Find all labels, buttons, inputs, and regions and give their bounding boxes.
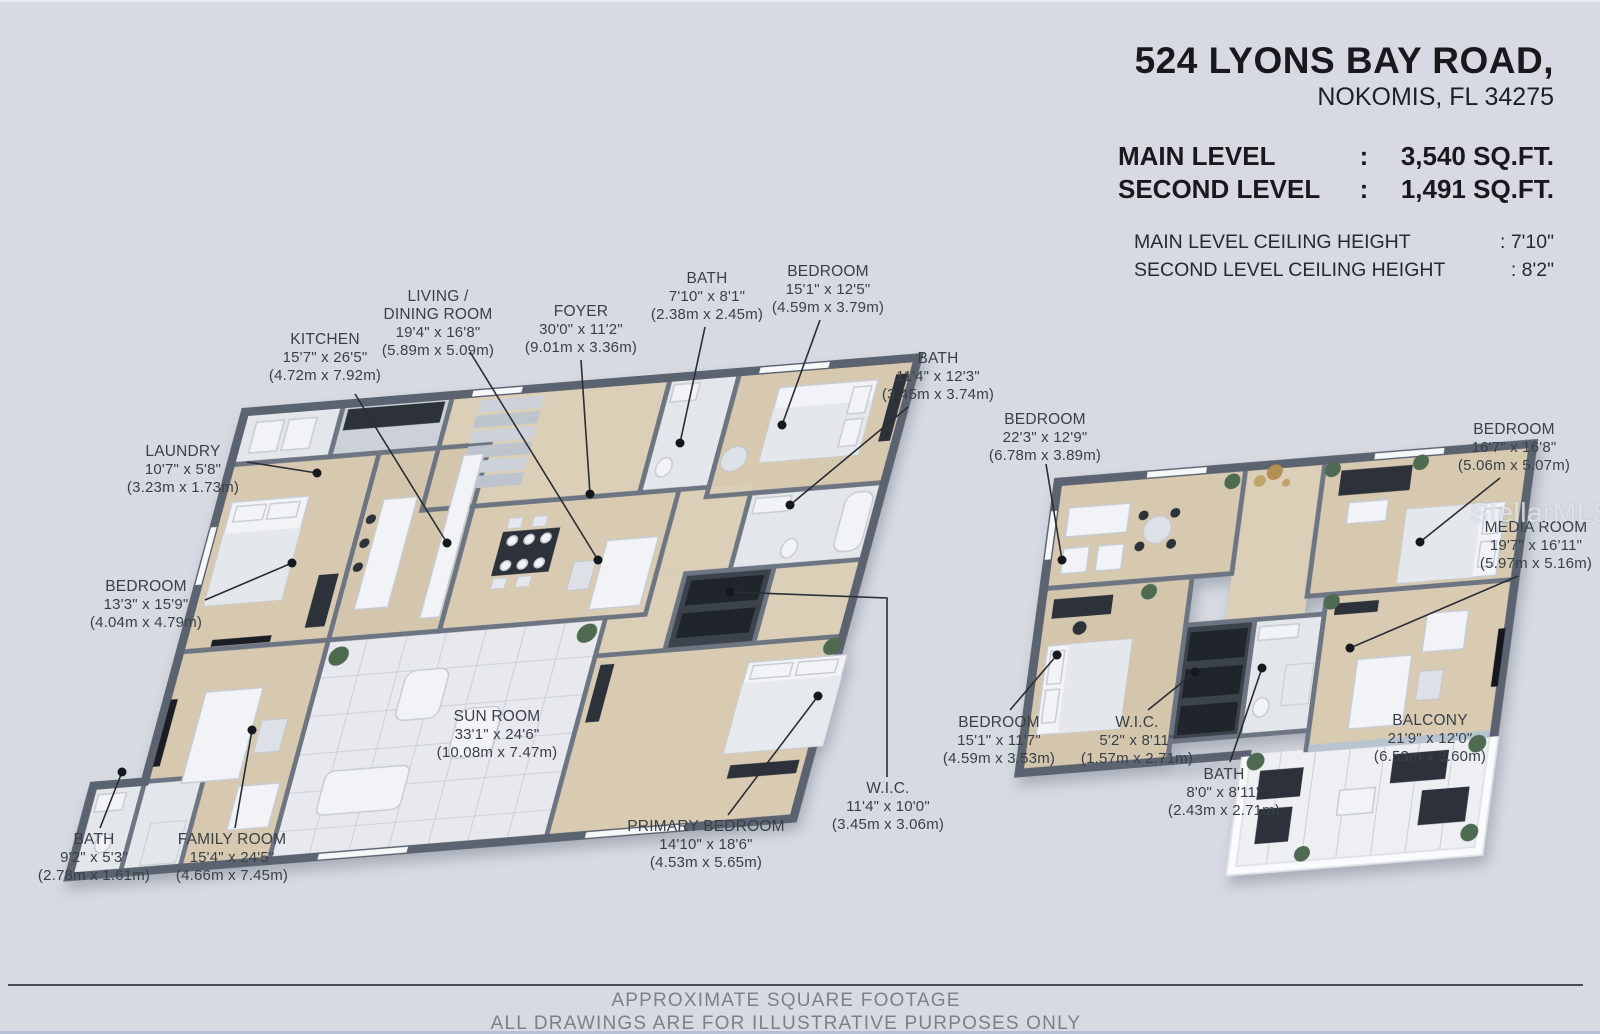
- room-dims-imperial: 10'7" x 5'8": [127, 461, 239, 479]
- main-ceiling-row: MAIN LEVEL CEILING HEIGHT : 7'10": [1134, 228, 1554, 256]
- room-dims-imperial: 19'4" x 16'8": [382, 324, 494, 342]
- room-label-living-dining: LIVING / DINING ROOM 19'4" x 16'8" (5.89…: [382, 288, 494, 360]
- room-dims-metric: (10.08m x 7.47m): [437, 744, 558, 762]
- room-dims-metric: (3.45m x 3.06m): [832, 816, 944, 834]
- room-dims-imperial: 19'7" x 16'11": [1480, 537, 1592, 555]
- room-label-bedroom-top: BEDROOM 15'1" x 12'5" (4.59m x 3.79m): [772, 263, 884, 317]
- room-dims-metric: (2.38m x 2.45m): [651, 306, 763, 324]
- room-label-bedroom-left: BEDROOM 13'3" x 15'9" (4.04m x 4.79m): [90, 578, 202, 632]
- room-label-bath-top: BATH 7'10" x 8'1" (2.38m x 2.45m): [651, 270, 763, 324]
- main-level-sqft-row: MAIN LEVEL : 3,540 SQ.FT.: [1118, 140, 1554, 173]
- room-name: FAMILY ROOM: [176, 831, 288, 849]
- room-label-bath-bottom-left: BATH 9'2" x 5'3" (2.78m x 1.61m): [38, 831, 150, 885]
- room-name: W.I.C.: [832, 780, 944, 798]
- room-label-bedroom-2a: BEDROOM 22'3" x 12'9" (6.78m x 3.89m): [989, 411, 1101, 465]
- room-label-bath-second: BATH 8'0" x 8'11" (2.43m x 2.71m): [1168, 766, 1280, 820]
- room-dims-metric: (3.45m x 3.74m): [882, 386, 994, 404]
- room-name: BEDROOM: [772, 263, 884, 281]
- room-name: BEDROOM: [90, 578, 202, 596]
- footer-disclaimer: APPROXIMATE SQUARE FOOTAGE ALL DRAWINGS …: [0, 989, 1572, 1034]
- room-label-bedroom-2b: BEDROOM 16'7" x 16'8" (5.06m x 5.07m): [1458, 421, 1570, 475]
- second-level-sqft-row: SECOND LEVEL : 1,491 SQ.FT.: [1118, 173, 1554, 206]
- colon-separator: :: [1354, 173, 1374, 206]
- room-name: PRIMARY BEDROOM: [627, 818, 784, 836]
- room-dims-metric: (4.66m x 7.45m): [176, 867, 288, 885]
- footer-divider: [8, 984, 1583, 986]
- room-dims-metric: (2.43m x 2.71m): [1168, 802, 1280, 820]
- room-name: BEDROOM: [1458, 421, 1570, 439]
- room-name: BEDROOM: [989, 411, 1101, 429]
- room-label-family-room: FAMILY ROOM 15'4" x 24'5" (4.66m x 7.45m…: [176, 831, 288, 885]
- room-name: SUN ROOM: [437, 708, 558, 726]
- room-dims-imperial: 7'10" x 8'1": [651, 288, 763, 306]
- room-name: BATH: [38, 831, 150, 849]
- room-dims-imperial: 22'3" x 12'9": [989, 429, 1101, 447]
- room-dims-metric: (5.89m x 5.09m): [382, 342, 494, 360]
- room-name: BATH: [1168, 766, 1280, 784]
- second-level-floorplan: [1000, 441, 1533, 890]
- room-name: BATH: [651, 270, 763, 288]
- room-label-sun-room: SUN ROOM 33'1" x 24'6" (10.08m x 7.47m): [437, 708, 558, 762]
- room-dims-metric: (6.78m x 3.89m): [989, 447, 1101, 465]
- room-label-bedroom-2c: BEDROOM 15'1" x 11'7" (4.59m x 3.53m): [943, 714, 1055, 768]
- room-name: FOYER: [525, 303, 637, 321]
- room-dims-imperial: 33'1" x 24'6": [437, 726, 558, 744]
- room-name: KITCHEN: [269, 331, 381, 349]
- second-ceiling-row: SECOND LEVEL CEILING HEIGHT : 8'2": [1134, 256, 1554, 284]
- room-dims-metric: (4.59m x 3.79m): [772, 299, 884, 317]
- room-dims-imperial: 14'10" x 18'6": [627, 836, 784, 854]
- room-name: BALCONY: [1374, 712, 1486, 730]
- room-name: LIVING / DINING ROOM: [382, 288, 494, 324]
- room-name: BATH: [882, 350, 994, 368]
- room-dims-imperial: 15'1" x 12'5": [772, 281, 884, 299]
- second-ceiling-label: SECOND LEVEL CEILING HEIGHT: [1134, 256, 1445, 284]
- room-dims-imperial: 8'0" x 8'11": [1168, 784, 1280, 802]
- room-dims-metric: (4.72m x 7.92m): [269, 367, 381, 385]
- room-label-bath-right: BATH 11'4" x 12'3" (3.45m x 3.74m): [882, 350, 994, 404]
- main-ceiling-value: : 7'10": [1500, 228, 1554, 256]
- second-ceiling-value: : 8'2": [1511, 256, 1554, 284]
- room-dims-metric: (3.23m x 1.73m): [127, 479, 239, 497]
- header-block: 524 LYONS BAY ROAD, NOKOMIS, FL 34275 MA…: [1118, 40, 1554, 284]
- main-ceiling-label: MAIN LEVEL CEILING HEIGHT: [1134, 228, 1411, 256]
- room-dims-metric: (6.53m x 3.60m): [1374, 748, 1486, 766]
- stellar-mls-watermark: StellarMLS: [1470, 497, 1600, 529]
- room-dims-metric: (2.78m x 1.61m): [38, 867, 150, 885]
- room-label-primary-bedroom: PRIMARY BEDROOM 14'10" x 18'6" (4.53m x …: [627, 818, 784, 872]
- room-dims-imperial: 15'7" x 26'5": [269, 349, 381, 367]
- second-level-sqft: 1,491 SQ.FT.: [1374, 173, 1554, 206]
- room-name: LAUNDRY: [127, 443, 239, 461]
- room-dims-metric: (9.01m x 3.36m): [525, 339, 637, 357]
- main-level-sqft: 3,540 SQ.FT.: [1374, 140, 1554, 173]
- room-dims-imperial: 13'3" x 15'9": [90, 596, 202, 614]
- footer-line1: APPROXIMATE SQUARE FOOTAGE: [0, 989, 1572, 1012]
- room-name: BEDROOM: [943, 714, 1055, 732]
- room-dims-metric: (5.97m x 5.16m): [1480, 555, 1592, 573]
- colon-separator: :: [1354, 140, 1374, 173]
- room-dims-metric: (4.04m x 4.79m): [90, 614, 202, 632]
- room-dims-imperial: 21'9" x 12'0": [1374, 730, 1486, 748]
- floorplan-sheet: 524 LYONS BAY ROAD, NOKOMIS, FL 34275 MA…: [0, 0, 1600, 1034]
- room-dims-metric: (5.06m x 5.07m): [1458, 457, 1570, 475]
- room-dims-imperial: 15'1" x 11'7": [943, 732, 1055, 750]
- room-label-wic-second: W.I.C. 5'2" x 8'11" (1.57m x 2.71m): [1081, 714, 1193, 768]
- room-label-laundry: LAUNDRY 10'7" x 5'8" (3.23m x 1.73m): [127, 443, 239, 497]
- room-name: W.I.C.: [1081, 714, 1193, 732]
- room-dims-imperial: 5'2" x 8'11": [1081, 732, 1193, 750]
- address-line1: 524 LYONS BAY ROAD,: [1135, 40, 1554, 82]
- room-dims-metric: (4.53m x 5.65m): [627, 854, 784, 872]
- room-dims-imperial: 15'4" x 24'5": [176, 849, 288, 867]
- room-dims-metric: (4.59m x 3.53m): [943, 750, 1055, 768]
- ceiling-height-table: MAIN LEVEL CEILING HEIGHT : 7'10" SECOND…: [1134, 228, 1554, 284]
- room-label-foyer: FOYER 30'0" x 11'2" (9.01m x 3.36m): [525, 303, 637, 357]
- address-line2: NOKOMIS, FL 34275: [1317, 82, 1554, 112]
- square-footage-table: MAIN LEVEL : 3,540 SQ.FT. SECOND LEVEL :…: [1118, 140, 1554, 206]
- main-level-label: MAIN LEVEL: [1118, 140, 1354, 173]
- room-dims-imperial: 16'7" x 16'8": [1458, 439, 1570, 457]
- room-dims-imperial: 9'2" x 5'3": [38, 849, 150, 867]
- room-dims-imperial: 11'4" x 10'0": [832, 798, 944, 816]
- room-dims-imperial: 11'4" x 12'3": [882, 368, 994, 386]
- room-label-balcony: BALCONY 21'9" x 12'0" (6.53m x 3.60m): [1374, 712, 1486, 766]
- room-dims-imperial: 30'0" x 11'2": [525, 321, 637, 339]
- room-label-kitchen: KITCHEN 15'7" x 26'5" (4.72m x 7.92m): [269, 331, 381, 385]
- room-label-wic-main: W.I.C. 11'4" x 10'0" (3.45m x 3.06m): [832, 780, 944, 834]
- second-level-label: SECOND LEVEL: [1118, 173, 1354, 206]
